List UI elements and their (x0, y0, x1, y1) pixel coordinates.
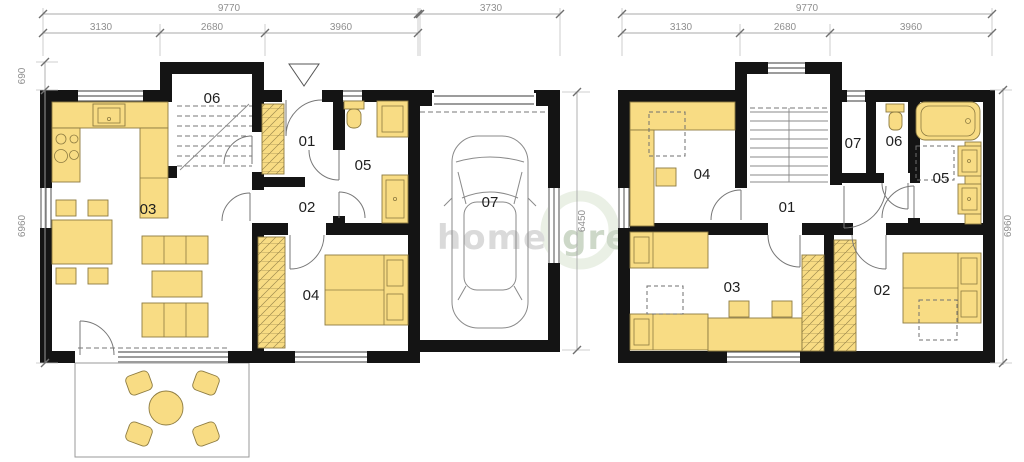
floor-plan-image: home-green® (0, 0, 1024, 462)
garage-door (420, 93, 548, 112)
dim-upper-body-height: 6960 (1003, 214, 1014, 237)
double-bed (903, 253, 981, 323)
sofa (142, 236, 208, 264)
upper-floor-plan: 04 07 06 05 01 03 02 9770 3130 2680 3960… (618, 3, 1014, 367)
desk-wardrobe (630, 102, 735, 226)
window (78, 90, 143, 102)
room-label-ground-hall: 01 (299, 133, 316, 150)
sofa-set (142, 236, 208, 337)
wardrobe-icon (834, 240, 856, 351)
dim-ground-segment-right: 3960 (330, 22, 353, 33)
toilet-icon (344, 101, 364, 128)
dim-upper-segment-mid: 2680 (774, 22, 797, 33)
bath-cabinet-icon (382, 175, 408, 223)
room-label-upper-guest: 04 (694, 166, 711, 183)
window (727, 351, 800, 363)
stool (656, 168, 676, 186)
door (882, 186, 914, 218)
door (286, 100, 322, 136)
dim-upper-segment-right: 3960 (900, 22, 923, 33)
dim-ground-garage-width: 3730 (480, 3, 503, 14)
room-label-ground-garage: 07 (482, 194, 499, 211)
window (343, 90, 362, 102)
toilet-icon (886, 104, 904, 130)
coffee-table (152, 271, 202, 297)
door (844, 186, 886, 228)
room-label-ground-corridor: 02 (299, 199, 316, 216)
room-label-upper-master: 02 (874, 282, 891, 299)
door (80, 321, 114, 355)
window (118, 351, 228, 363)
stairs-icon (177, 104, 252, 170)
dining-chair (88, 200, 108, 216)
washbasin-icon (958, 184, 981, 214)
dim-upper-total-width: 9770 (796, 3, 819, 14)
dining-chair (88, 268, 108, 284)
door (309, 150, 339, 180)
door (224, 136, 252, 164)
door (339, 192, 365, 218)
room-label-upper-landing: 01 (779, 199, 796, 216)
single-bed (630, 314, 708, 350)
dim-ground-segment-left: 3130 (90, 22, 113, 33)
room-label-ground-stairs: 06 (204, 90, 221, 107)
wardrobe-icon (262, 104, 284, 174)
room-label-upper-bathroom: 05 (933, 170, 950, 187)
window (768, 62, 805, 74)
dining-table (52, 220, 112, 264)
terrace (75, 363, 249, 457)
dim-upper-segment-left: 3130 (670, 22, 693, 33)
floor-plan-page: home-green® (0, 0, 1024, 462)
stool (772, 301, 792, 317)
window (295, 351, 367, 363)
double-bed (325, 255, 408, 325)
wardrobe-icon (802, 255, 824, 351)
single-bed (630, 232, 708, 268)
dining-chair (56, 200, 76, 216)
stairs-icon (750, 108, 828, 182)
ground-floor-doors (80, 100, 365, 355)
terrace-table (149, 391, 183, 425)
window (847, 90, 865, 102)
dim-ground-porch-depth: 690 (17, 67, 28, 84)
door (711, 190, 741, 220)
watermark-brand-left: home- (437, 218, 562, 258)
door (768, 235, 800, 267)
dining-set (52, 200, 112, 284)
room-label-upper-kids: 03 (724, 279, 741, 296)
dining-chair (56, 268, 76, 284)
room-label-upper-wc: 06 (886, 133, 903, 150)
room-label-ground-living: 03 (140, 201, 157, 218)
door (852, 235, 886, 269)
window (548, 188, 560, 263)
window (618, 188, 630, 228)
kitchen-sink-icon (93, 104, 125, 126)
stool (729, 301, 749, 317)
bathtub-icon (916, 102, 980, 140)
door (222, 193, 250, 221)
room-label-ground-bathroom: 05 (355, 157, 372, 174)
washbasin-icon (958, 146, 981, 176)
window (40, 188, 52, 228)
dim-ground-segment-mid: 2680 (201, 22, 224, 33)
skylight-dashed (647, 286, 683, 314)
dim-ground-garage-depth: 6450 (577, 209, 588, 232)
room-label-upper-closet: 07 (845, 135, 862, 152)
dim-ground-total-width: 9770 (218, 3, 241, 14)
wardrobe-icon (258, 237, 285, 348)
desk (708, 318, 802, 351)
door (290, 235, 324, 269)
washer-icon (377, 101, 408, 137)
room-label-ground-bedroom: 04 (303, 287, 320, 304)
entrance-arrow-icon (289, 64, 319, 86)
sofa (142, 303, 208, 337)
dim-ground-body-height: 6960 (17, 214, 28, 237)
